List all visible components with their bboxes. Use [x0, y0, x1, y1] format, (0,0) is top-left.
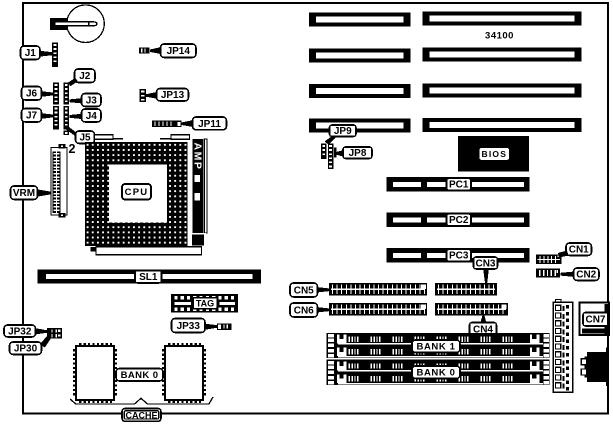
svg-text:J1: J1	[25, 48, 37, 59]
svg-text:CN1: CN1	[569, 245, 589, 256]
svg-text:PC2: PC2	[449, 215, 469, 226]
svg-text:CN3: CN3	[475, 258, 495, 269]
svg-text:CACHE: CACHE	[125, 410, 157, 420]
svg-text:BANK 0: BANK 0	[417, 368, 456, 379]
svg-text:CN5: CN5	[294, 285, 314, 296]
svg-text:BIOS: BIOS	[482, 149, 508, 159]
svg-text:VRM: VRM	[13, 188, 35, 199]
svg-text:SL1: SL1	[139, 272, 158, 283]
svg-text:PC1: PC1	[449, 180, 469, 191]
svg-text:JP14: JP14	[167, 46, 191, 57]
svg-text:J2: J2	[79, 71, 91, 82]
svg-text:CN2: CN2	[576, 270, 596, 281]
svg-text:JP8: JP8	[349, 148, 367, 159]
svg-text:JP32: JP32	[8, 326, 32, 337]
svg-text:J3: J3	[86, 95, 98, 106]
svg-text:J7: J7	[26, 111, 38, 122]
svg-text:CN7: CN7	[585, 315, 605, 326]
svg-text:BANK 0: BANK 0	[121, 370, 159, 381]
svg-text:34100: 34100	[485, 31, 514, 42]
svg-text:TAG: TAG	[196, 299, 214, 309]
svg-text:J4: J4	[86, 111, 98, 122]
svg-text:JP13: JP13	[161, 90, 185, 101]
svg-text:2: 2	[69, 142, 76, 156]
svg-text:JP30: JP30	[14, 344, 38, 355]
svg-text:CPU: CPU	[125, 187, 149, 198]
svg-text:PC3: PC3	[449, 251, 469, 262]
svg-text:JP33: JP33	[177, 321, 201, 332]
svg-text:JP11: JP11	[198, 119, 221, 130]
svg-text:AMP: AMP	[192, 143, 204, 171]
svg-text:CN6: CN6	[294, 305, 314, 316]
svg-text:BANK 1: BANK 1	[417, 342, 456, 353]
svg-text:JP9: JP9	[334, 126, 352, 137]
svg-text:J6: J6	[26, 89, 38, 100]
